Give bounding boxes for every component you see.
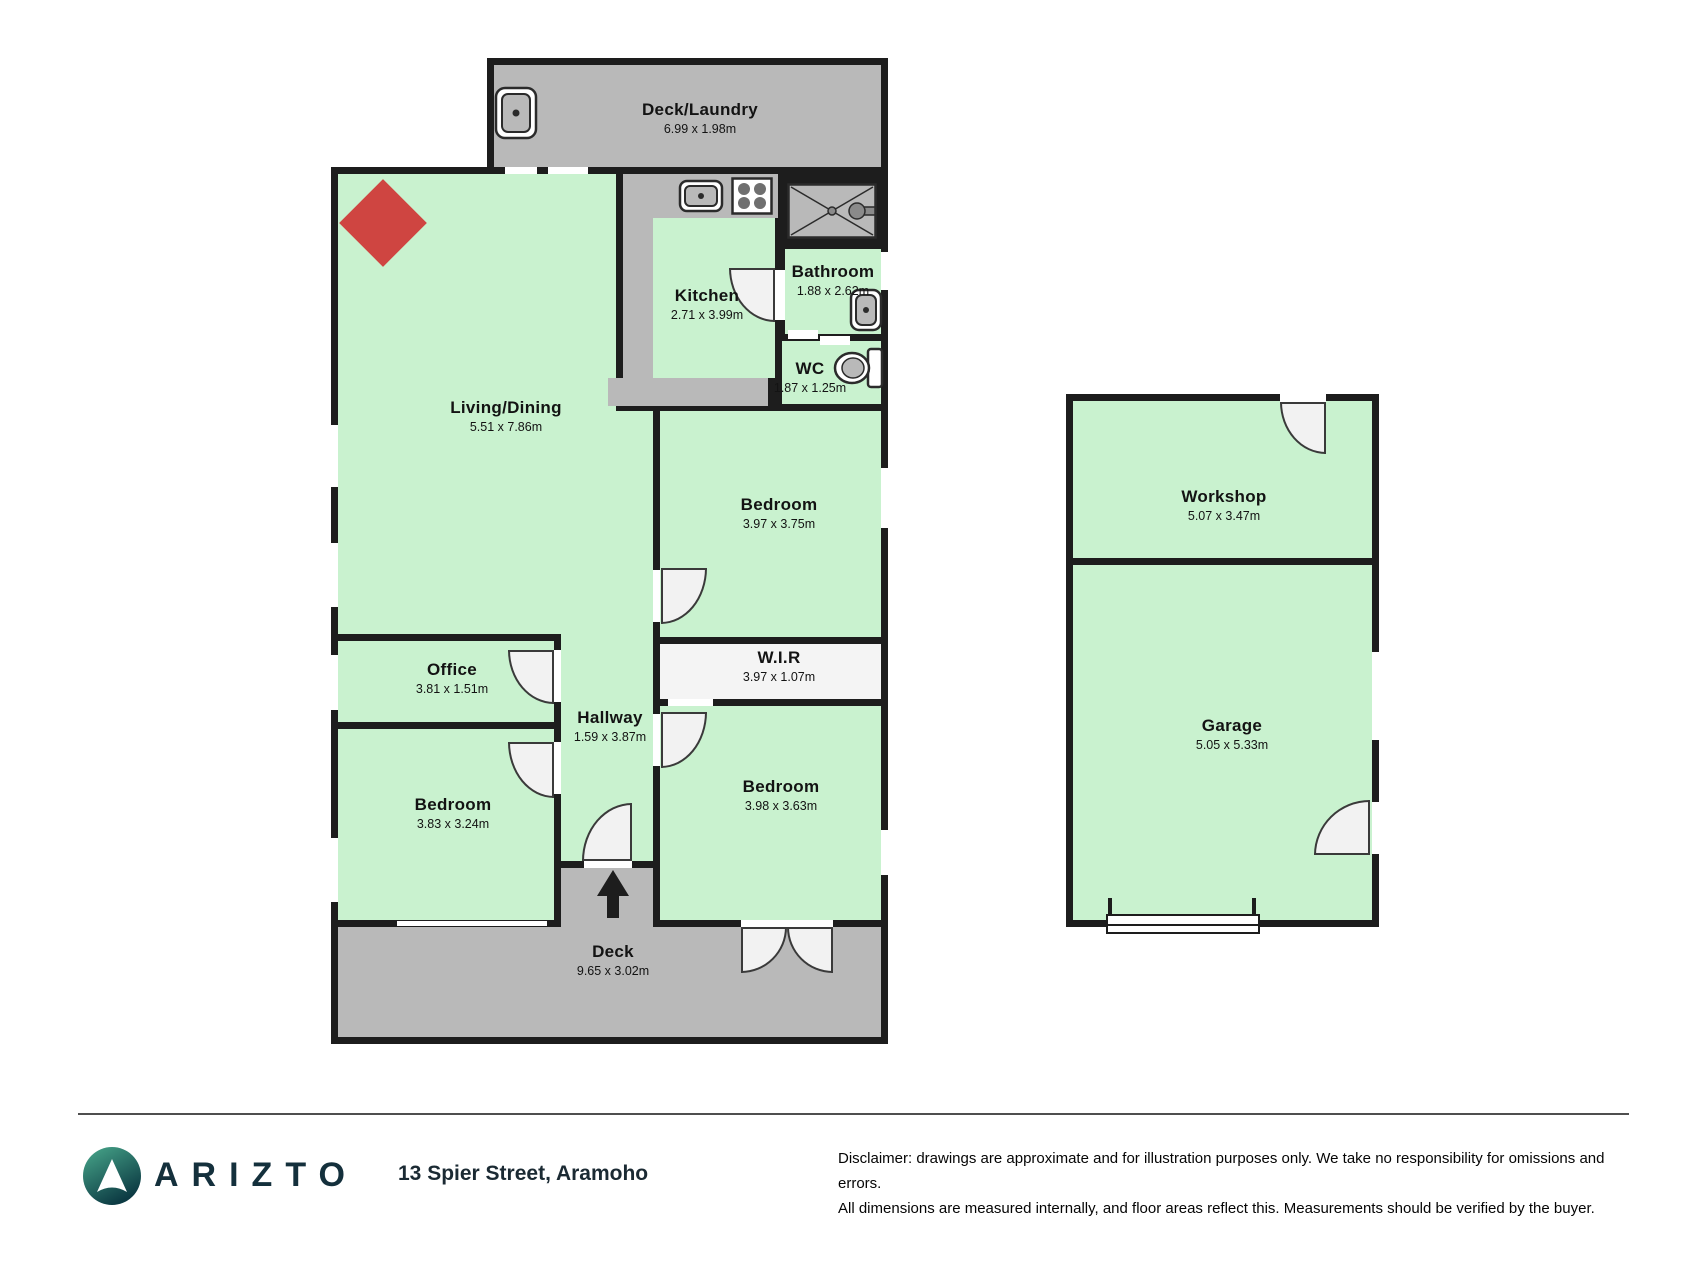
window: [881, 468, 888, 528]
room-label-bathroom: Bathroom1.88 x 2.62m: [792, 262, 875, 298]
room-label-workshop: Workshop5.07 x 3.47m: [1181, 487, 1266, 523]
room-label-deck-laundry: Deck/Laundry6.99 x 1.98m: [642, 100, 758, 136]
garage-door-post: [1252, 898, 1256, 914]
room-label-garage: Garage5.05 x 5.33m: [1196, 716, 1268, 752]
shower-icon: [787, 183, 877, 239]
doorway: [554, 650, 561, 702]
window: [331, 838, 338, 902]
window: [881, 830, 888, 875]
room-living-dining-extension: [616, 411, 653, 634]
room-label-wc: WC1.87 x 1.25m: [774, 359, 846, 395]
room-label-bedroom-2: Bedroom3.83 x 3.24m: [415, 795, 492, 831]
doorway: [1280, 394, 1326, 402]
window: [505, 167, 537, 174]
disclaimer-line-2: All dimensions are measured internally, …: [838, 1196, 1638, 1221]
garage-door-post: [1108, 898, 1112, 914]
disclaimer-text: Disclaimer: drawings are approximate and…: [838, 1146, 1638, 1221]
doorway: [653, 570, 660, 622]
room-label-office: Office3.81 x 1.51m: [416, 660, 488, 696]
room-label-living-dining: Living/Dining5.51 x 7.86m: [450, 398, 562, 434]
room-workshop: [1073, 401, 1372, 558]
room-label-hallway: Hallway1.59 x 3.87m: [574, 708, 646, 744]
entry-arrow-icon: [596, 870, 630, 920]
arizto-logo-icon: [82, 1146, 142, 1206]
wall-mass: [608, 378, 768, 406]
room-label-bedroom-3: Bedroom3.98 x 3.63m: [743, 777, 820, 813]
footer-divider: [78, 1113, 1629, 1115]
wir-opening: [668, 699, 713, 706]
room-label-deck: Deck9.65 x 3.02m: [577, 942, 649, 978]
window: [881, 252, 888, 290]
room-label-wir: W.I.R3.97 x 1.07m: [743, 648, 815, 684]
room-label-bedroom-1: Bedroom3.97 x 3.75m: [741, 495, 818, 531]
sliding-door-notch: [820, 336, 850, 345]
stove-icon: [731, 177, 773, 215]
sliding-door-notch: [788, 330, 818, 339]
garage-roller-door: [1106, 914, 1260, 934]
doorway: [775, 270, 785, 320]
window: [331, 543, 338, 607]
window: [1372, 652, 1379, 740]
disclaimer-line-1: Disclaimer: drawings are approximate and…: [838, 1146, 1638, 1196]
doorway: [1372, 802, 1379, 854]
room-label-kitchen: Kitchen2.71 x 3.99m: [671, 286, 743, 322]
window: [331, 425, 338, 487]
floorplan-page: Deck/Laundry6.99 x 1.98m Kitchen2.71 x 3…: [0, 0, 1707, 1280]
window: [397, 921, 547, 926]
brand-wordmark: ARIZTO: [154, 1156, 358, 1195]
kitchen-counter-side: [623, 218, 653, 378]
window: [331, 655, 338, 710]
doorway: [741, 920, 833, 927]
property-address: 13 Spier Street, Aramoho: [398, 1162, 648, 1186]
laundry-sink-icon: [494, 86, 538, 140]
kitchen-sink-icon: [678, 179, 724, 213]
doorway: [584, 861, 632, 868]
doorway: [554, 742, 561, 794]
window: [548, 167, 588, 174]
doorway: [653, 714, 660, 766]
